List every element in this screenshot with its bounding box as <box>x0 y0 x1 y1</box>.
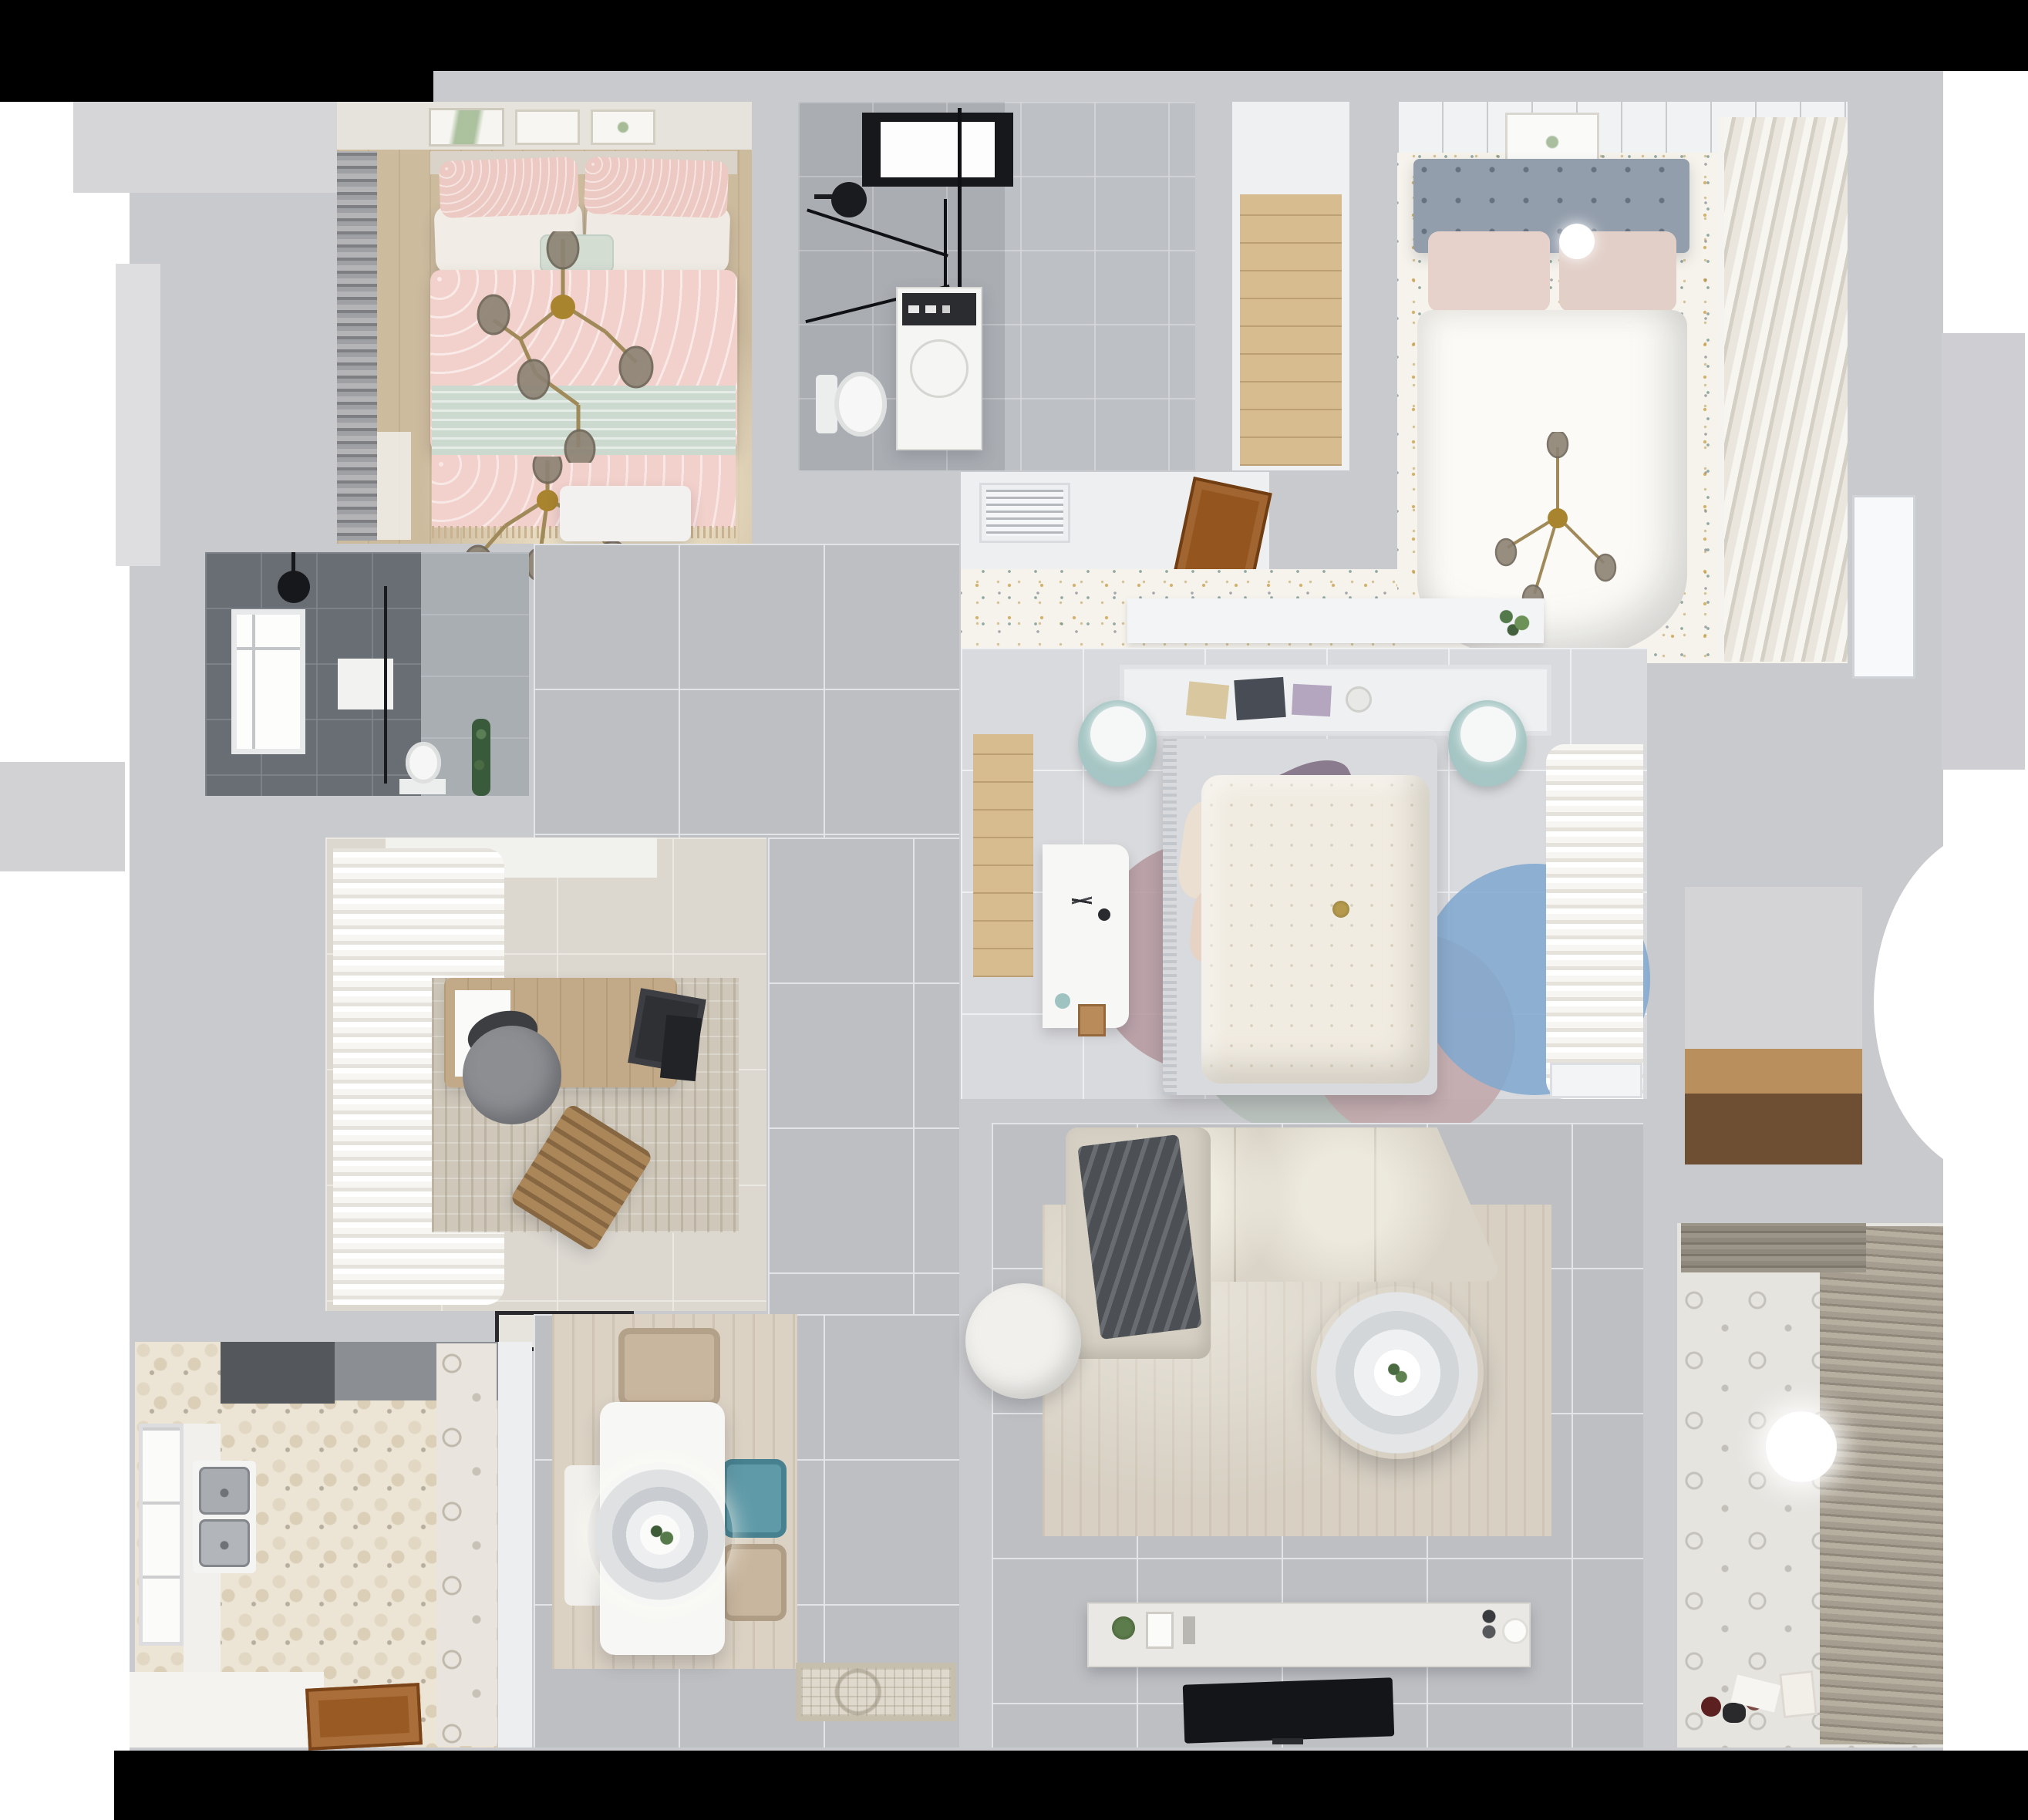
console-cup <box>1502 1618 1528 1644</box>
bedroom3-curtains <box>1546 744 1643 1099</box>
coffee-table-plant <box>1380 1356 1414 1390</box>
kitchen-window <box>139 1424 184 1646</box>
bathroom2-plant <box>472 719 490 796</box>
shower-head-2 <box>278 571 310 603</box>
skylight-pane <box>876 122 999 177</box>
bed2-pillow-l <box>1428 231 1550 312</box>
balcony-toy-1 <box>1701 1697 1721 1717</box>
door-right-white <box>1852 495 1915 679</box>
kitchen-hood-dark <box>221 1342 335 1404</box>
bedroom1-chandelier-svg <box>463 231 663 463</box>
canopy-bowl <box>1346 686 1372 713</box>
tv-stand <box>1272 1738 1303 1744</box>
woodhall-floor <box>1240 194 1342 466</box>
bed3-duvet <box>1201 775 1430 1084</box>
console-bottle <box>1183 1616 1195 1644</box>
shower-head-1 <box>831 182 867 217</box>
pendant-plant <box>645 1518 679 1552</box>
balcony-blinds <box>1820 1226 1943 1744</box>
bathroom2-window <box>231 609 305 754</box>
bar-bottom <box>114 1751 2028 1820</box>
edge-c <box>0 762 125 871</box>
bed1-pillow-blush-r <box>584 157 729 218</box>
band-beam <box>1127 598 1544 643</box>
edge-d <box>1942 333 2025 770</box>
bedroom2-louver <box>1718 117 1848 662</box>
bedroom2-chandelier-svg <box>1488 432 1627 617</box>
balcony-light <box>1766 1411 1837 1482</box>
niche-wood-front <box>1685 1094 1862 1164</box>
bedroom1-curtain <box>337 151 377 541</box>
kitchen-deco-strip <box>436 1343 497 1746</box>
bed1-pillow-blush-l <box>439 157 579 218</box>
nightstand-left-lamp <box>1090 706 1146 762</box>
kitchen-counter-bottom <box>130 1672 324 1748</box>
block-topleft <box>0 0 433 102</box>
desk3-glass <box>1055 993 1070 1009</box>
nightstand-right-lamp <box>1460 706 1516 762</box>
bedroom3-cabinet <box>1550 1063 1642 1098</box>
shower-arm-1 <box>814 194 834 199</box>
bedroom1-side-table <box>560 486 691 541</box>
dining-chair-top <box>618 1328 720 1407</box>
toilet2-bowl <box>406 742 441 784</box>
balcony-blinds-top <box>1681 1223 1866 1272</box>
console-frames <box>1146 1612 1174 1649</box>
washer-panel <box>902 293 976 325</box>
hall-upper <box>534 544 959 838</box>
canopy-book-2 <box>1234 677 1285 720</box>
hall-lower <box>768 838 959 1314</box>
kitchen-basin-2 <box>199 1519 250 1567</box>
shower-pipe-2 <box>291 552 295 574</box>
bed3-fringe-left <box>1163 739 1177 1095</box>
edge-b <box>116 264 160 566</box>
bed3-gold-dot <box>1332 901 1349 918</box>
balcony-bucket <box>1779 1670 1817 1718</box>
dining-chair-beige <box>722 1544 787 1621</box>
edge-a <box>73 102 376 193</box>
bedroom3-wood-niche <box>973 734 1033 977</box>
kitchen-basin-1 <box>199 1467 250 1515</box>
beam-plant <box>1493 600 1538 642</box>
entry-doormat <box>796 1663 956 1721</box>
bathroom2-glass <box>384 586 387 784</box>
art-frame-1 <box>429 108 504 147</box>
floor-plan-render <box>0 0 2028 1820</box>
toilet1-bowl <box>834 372 887 436</box>
niche-wood-top <box>1685 1049 1862 1094</box>
bedroom1-window <box>377 432 411 540</box>
desk3-knob <box>1098 908 1110 921</box>
kitchen-door-wood <box>305 1683 423 1751</box>
study-monitor <box>660 1015 702 1081</box>
balcony-toy-2 <box>1723 1703 1746 1723</box>
washer-door <box>910 339 969 398</box>
canopy-book-1 <box>1186 681 1229 719</box>
bed2-lamp-dot <box>1559 224 1595 259</box>
canopy-book-3 <box>1292 684 1332 717</box>
living-pouf <box>965 1283 1081 1399</box>
study-chair-seat <box>463 1026 561 1124</box>
vent-grille <box>979 483 1070 543</box>
kitchen-divider <box>498 1342 532 1748</box>
desk3-pens <box>1072 885 1092 908</box>
console-candles <box>1479 1609 1499 1640</box>
console-plant <box>1112 1616 1135 1640</box>
tv <box>1183 1677 1394 1743</box>
desk3-tray <box>1078 1004 1106 1036</box>
art-frame-3 <box>591 110 655 145</box>
art-frame-2 <box>515 110 580 145</box>
